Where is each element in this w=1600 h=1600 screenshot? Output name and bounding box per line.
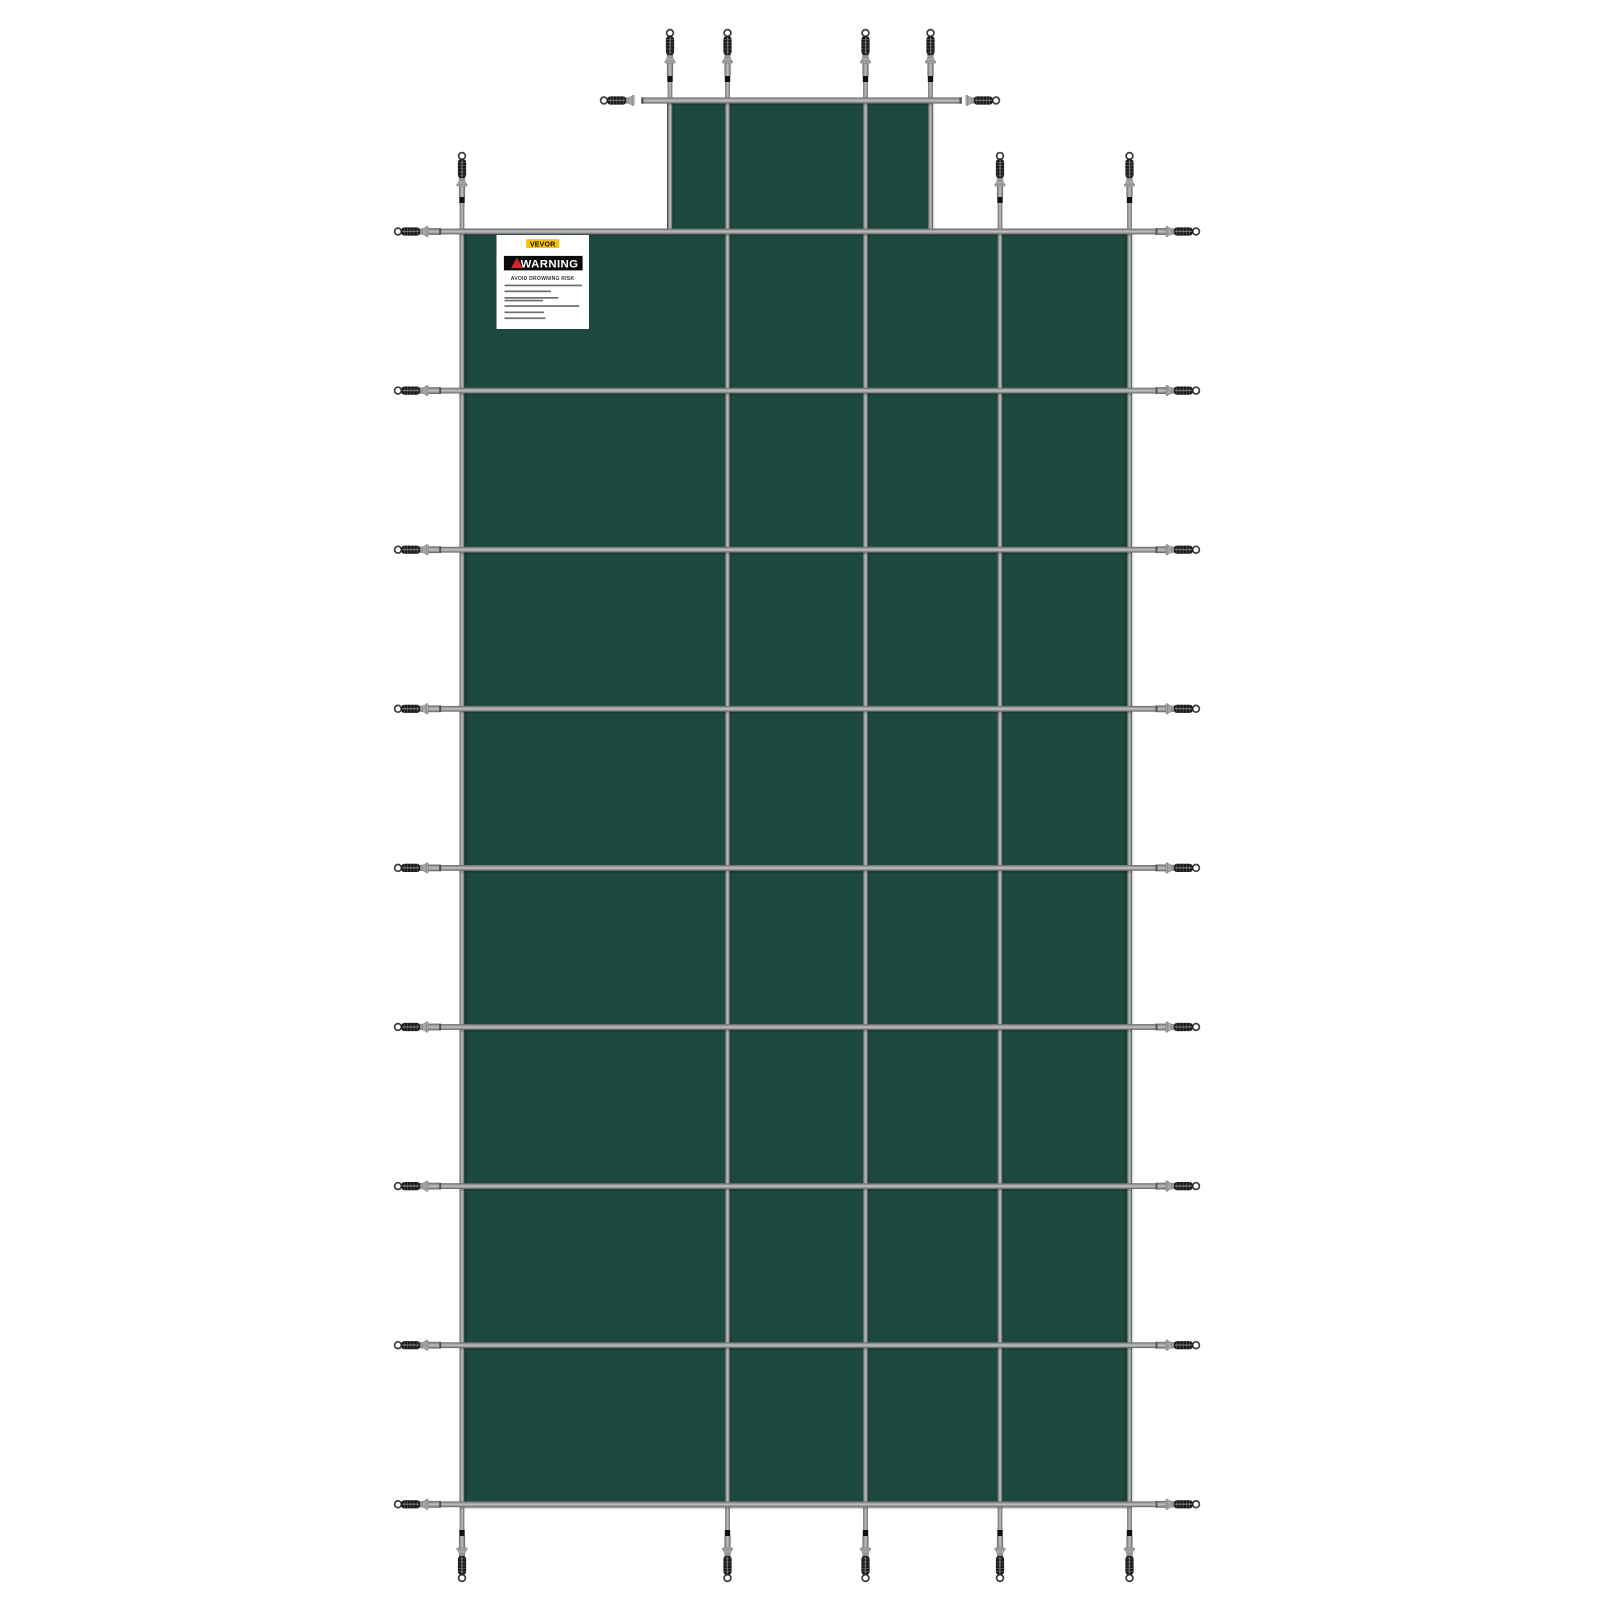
svg-text:AVOID DROWNING RISK: AVOID DROWNING RISK — [511, 276, 575, 282]
svg-text:VEVOR: VEVOR — [530, 242, 556, 249]
svg-text:WARNING: WARNING — [521, 258, 579, 270]
